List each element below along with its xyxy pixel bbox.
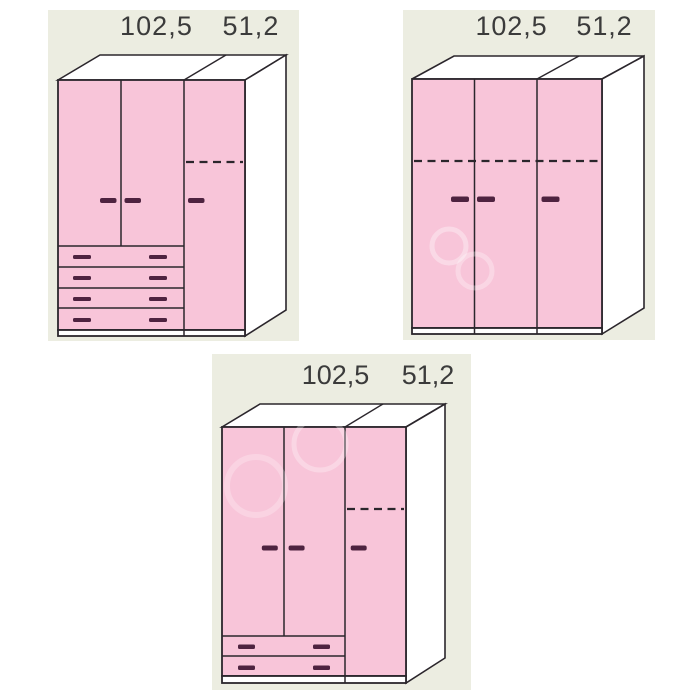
svg-text:102,5: 102,5 [475, 11, 547, 41]
svg-text:102,5: 102,5 [120, 11, 193, 41]
svg-text:51,2: 51,2 [223, 11, 280, 41]
svg-text:102,5: 102,5 [302, 360, 370, 390]
svg-text:51,2: 51,2 [402, 360, 455, 390]
svg-text:51,2: 51,2 [576, 11, 632, 41]
